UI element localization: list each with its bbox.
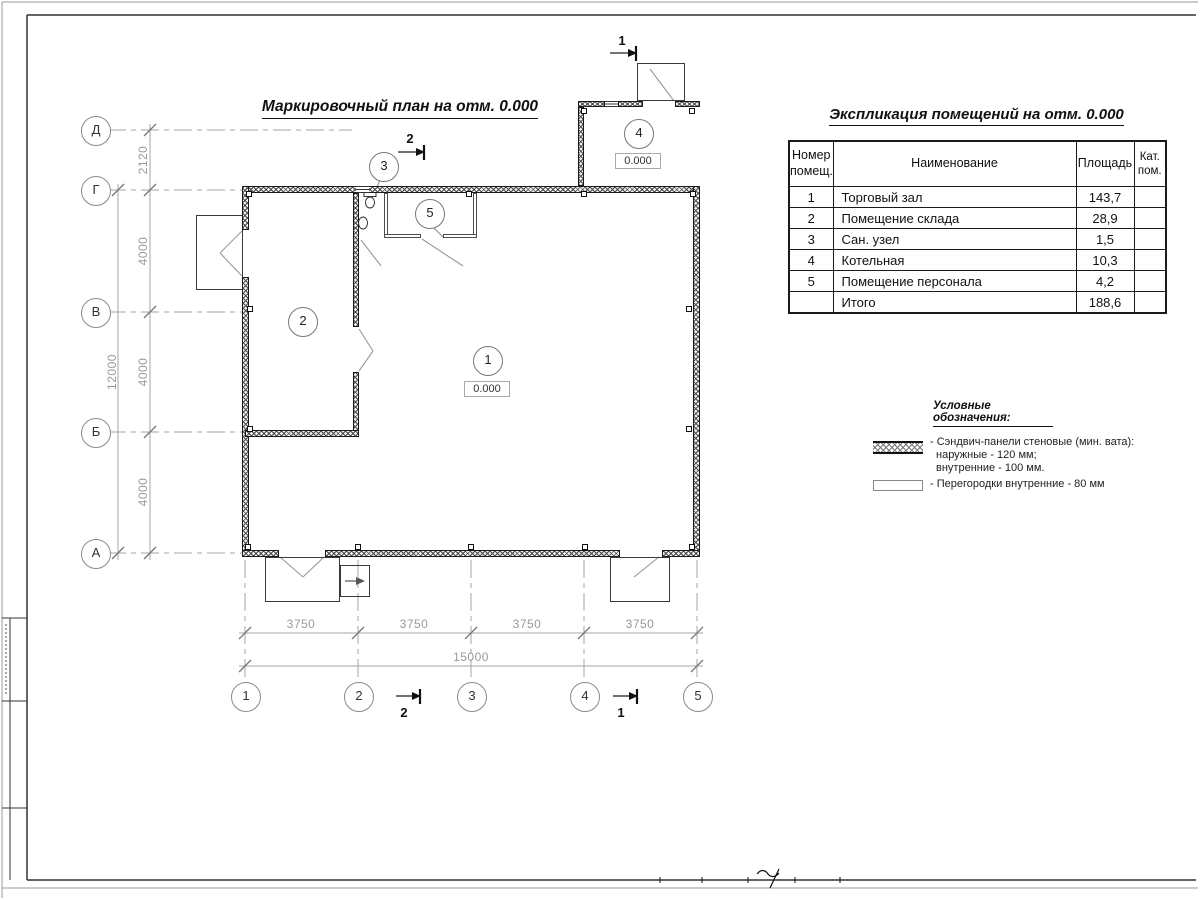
section-label: 2 [402,131,418,146]
partition-wall [384,193,388,238]
room-callout: 1 [473,346,503,376]
wall-segment [675,101,700,107]
wall-segment [618,101,643,107]
cell-cat [1134,229,1166,250]
partition-wall [384,234,421,238]
table-header-row: Номер помещ. Наименование Площадь Кат. п… [789,141,1166,187]
cell-num: 2 [789,208,833,229]
window-opening [605,101,618,107]
axis-col-label: 1 [231,682,261,712]
column-mark [582,544,588,550]
dim-total-label: 12000 [105,342,119,402]
wall-segment [693,186,700,557]
table-row: 4 Котельная 10,3 [789,250,1166,271]
section-label: 2 [396,705,412,720]
filing-strip [2,618,27,880]
cell-cat [1134,292,1166,314]
wall-segment [325,550,620,557]
cell-cat [1134,271,1166,292]
column-mark [686,306,692,312]
plan-title-text: Маркировочный план на отм. 0.000 [262,98,538,119]
cell-area: 143,7 [1076,187,1134,208]
cell-area: 28,9 [1076,208,1134,229]
axis-row-label: Д [81,116,111,146]
elevation-label: 0.000 [464,381,510,397]
cell-cat [1134,187,1166,208]
partition-wall [443,234,477,238]
table-row: 5 Помещение персонала 4,2 [789,271,1166,292]
column-mark [689,544,695,550]
col-header-number: Номер помещ. [789,141,833,187]
window-opening [356,186,369,193]
cell-area: 4,2 [1076,271,1134,292]
wall-segment [245,430,359,437]
porch-outline [637,63,685,101]
dim-label: 4000 [136,462,150,522]
col-header-category: Кат. пом. [1134,141,1166,187]
col-header-name: Наименование [833,141,1076,187]
cell-name: Торговый зал [833,187,1076,208]
legend-item-text: - Сэндвич-панели стеновые (мин. вата): [930,436,1134,448]
porch-outline [196,215,243,290]
room-schedule-table: Номер помещ. Наименование Площадь Кат. п… [788,140,1167,314]
axis-col-label: 5 [683,682,713,712]
room-callout: 2 [288,307,318,337]
room-callout: 5 [415,199,445,229]
table-title-text: Экспликация помещений на отм. 0.000 [829,106,1124,126]
partition-wall [473,193,477,238]
wall-segment [242,277,249,557]
column-mark [466,191,472,197]
column-mark [247,426,253,432]
room-callout: 4 [624,119,654,149]
table-title: Экспликация помещений на отм. 0.000 [788,106,1165,126]
dim-total-label: 15000 [441,650,501,664]
section-label: 1 [614,33,630,48]
legend-title: Условные обозначения: [933,400,1053,427]
dim-label: 4000 [136,342,150,402]
toilet-icon [364,192,376,208]
table-total-row: Итого 188,6 [789,292,1166,314]
legend-item-text: наружные - 120 мм; [936,449,1037,461]
legend-symbol-partition [873,480,923,491]
cell-name: Помещение персонала [833,271,1076,292]
column-mark [581,108,587,114]
dim-label: 4000 [136,221,150,281]
axis-grid [108,130,697,682]
axis-row-label: А [81,539,111,569]
cell-num: 5 [789,271,833,292]
legend-symbol-sandwich [873,441,923,454]
cell-name: Сан. узел [833,229,1076,250]
column-mark [246,191,252,197]
axis-row-label: Г [81,176,111,206]
cell-cat [1134,208,1166,229]
cell-name: Котельная [833,250,1076,271]
axis-row-label: В [81,298,111,328]
column-mark [468,544,474,550]
col-header-area: Площадь [1076,141,1134,187]
column-mark [245,544,251,550]
axis-col-label: 3 [457,682,487,712]
dim-label: 2120 [136,130,150,190]
axis-row-label: Б [81,418,111,448]
room-callout: 3 [369,152,399,182]
column-mark [355,544,361,550]
section-label: 1 [613,705,629,720]
dim-label: 3750 [271,617,331,631]
legend-item-text: - Перегородки внутренние - 80 мм [930,478,1105,490]
section-marker-arrows [396,46,638,704]
dim-label: 3750 [610,617,670,631]
table-row: 3 Сан. узел 1,5 [789,229,1166,250]
wall-segment [578,101,605,107]
wall-segment [353,372,359,437]
cell-name: Помещение склада [833,208,1076,229]
table-row: 1 Торговый зал 143,7 [789,187,1166,208]
axis-col-label: 2 [344,682,374,712]
column-mark [581,191,587,197]
column-mark [247,306,253,312]
wall-segment [242,550,279,557]
column-mark [689,108,695,114]
wall-segment [578,107,584,186]
ramp-outline [340,565,370,597]
column-mark [686,426,692,432]
cell-area: 1,5 [1076,229,1134,250]
cell-area: 10,3 [1076,250,1134,271]
cell-cat [1134,250,1166,271]
plan-title: Маркировочный план на отм. 0.000 [250,98,550,119]
elevation-label: 0.000 [615,153,661,169]
cell-num [789,292,833,314]
dim-label: 3750 [384,617,444,631]
cell-num: 4 [789,250,833,271]
wall-segment [353,193,359,327]
wall-segment [662,550,700,557]
legend-item-text: внутренние - 100 мм. [936,462,1044,474]
porch-outline [265,557,340,602]
cell-num: 1 [789,187,833,208]
cell-total-label: Итого [833,292,1076,314]
cell-num: 3 [789,229,833,250]
column-mark [690,191,696,197]
porch-outline [610,557,670,602]
signature-mark [757,869,779,888]
legend-title-text: Условные обозначения: [933,400,1053,427]
sink-icon [359,217,368,229]
axis-col-label: 4 [570,682,600,712]
table-row: 2 Помещение склада 28,9 [789,208,1166,229]
cell-total-area: 188,6 [1076,292,1134,314]
drawing-sheet: Маркировочный план на отм. 0.000 Эксплик… [0,0,1200,900]
dim-label: 3750 [497,617,557,631]
